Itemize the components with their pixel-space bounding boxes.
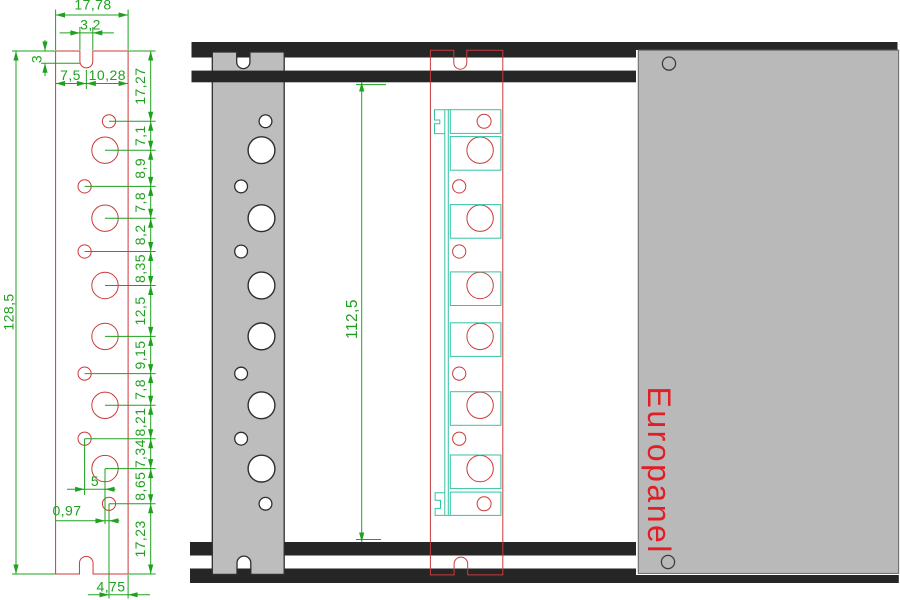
- svg-text:0,97: 0,97: [52, 503, 81, 519]
- svg-text:8,2: 8,2: [132, 224, 148, 245]
- svg-text:8,35: 8,35: [132, 254, 148, 283]
- svg-text:7,34: 7,34: [132, 439, 148, 468]
- svg-text:9,15: 9,15: [132, 340, 148, 369]
- svg-text:17,23: 17,23: [132, 520, 148, 557]
- svg-text:5: 5: [91, 473, 99, 489]
- svg-text:3,2: 3,2: [80, 17, 101, 33]
- svg-text:7,5: 7,5: [60, 67, 81, 83]
- svg-text:8,9: 8,9: [132, 158, 148, 179]
- svg-text:112,5: 112,5: [344, 299, 361, 339]
- svg-text:3: 3: [29, 55, 45, 63]
- svg-text:8,21: 8,21: [132, 407, 148, 436]
- svg-text:7,1: 7,1: [132, 125, 148, 146]
- svg-text:4,75: 4,75: [96, 579, 125, 595]
- svg-text:7,8: 7,8: [132, 379, 148, 400]
- svg-text:10,28: 10,28: [89, 67, 126, 83]
- svg-text:17,27: 17,27: [132, 68, 148, 105]
- svg-text:Europanel: Europanel: [641, 387, 677, 555]
- svg-text:7,8: 7,8: [132, 192, 148, 213]
- svg-text:12,5: 12,5: [132, 296, 148, 325]
- svg-text:128,5: 128,5: [1, 293, 17, 330]
- svg-text:8,65: 8,65: [132, 472, 148, 501]
- svg-text:17,78: 17,78: [74, 0, 111, 13]
